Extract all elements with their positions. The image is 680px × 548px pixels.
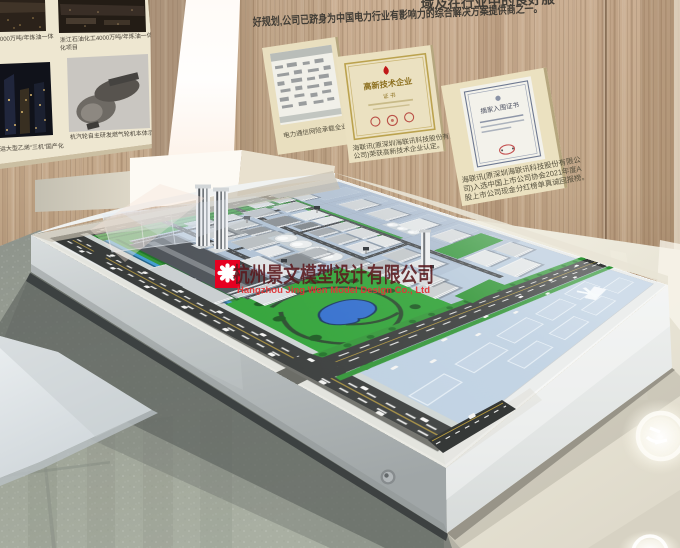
svg-text:Hangzhou Jing Wen Model Design: Hangzhou Jing Wen Model Design Co., Ltd (237, 285, 430, 295)
svg-text:杭州景文模型设计有限公司: 杭州景文模型设计有限公司 (233, 263, 434, 287)
